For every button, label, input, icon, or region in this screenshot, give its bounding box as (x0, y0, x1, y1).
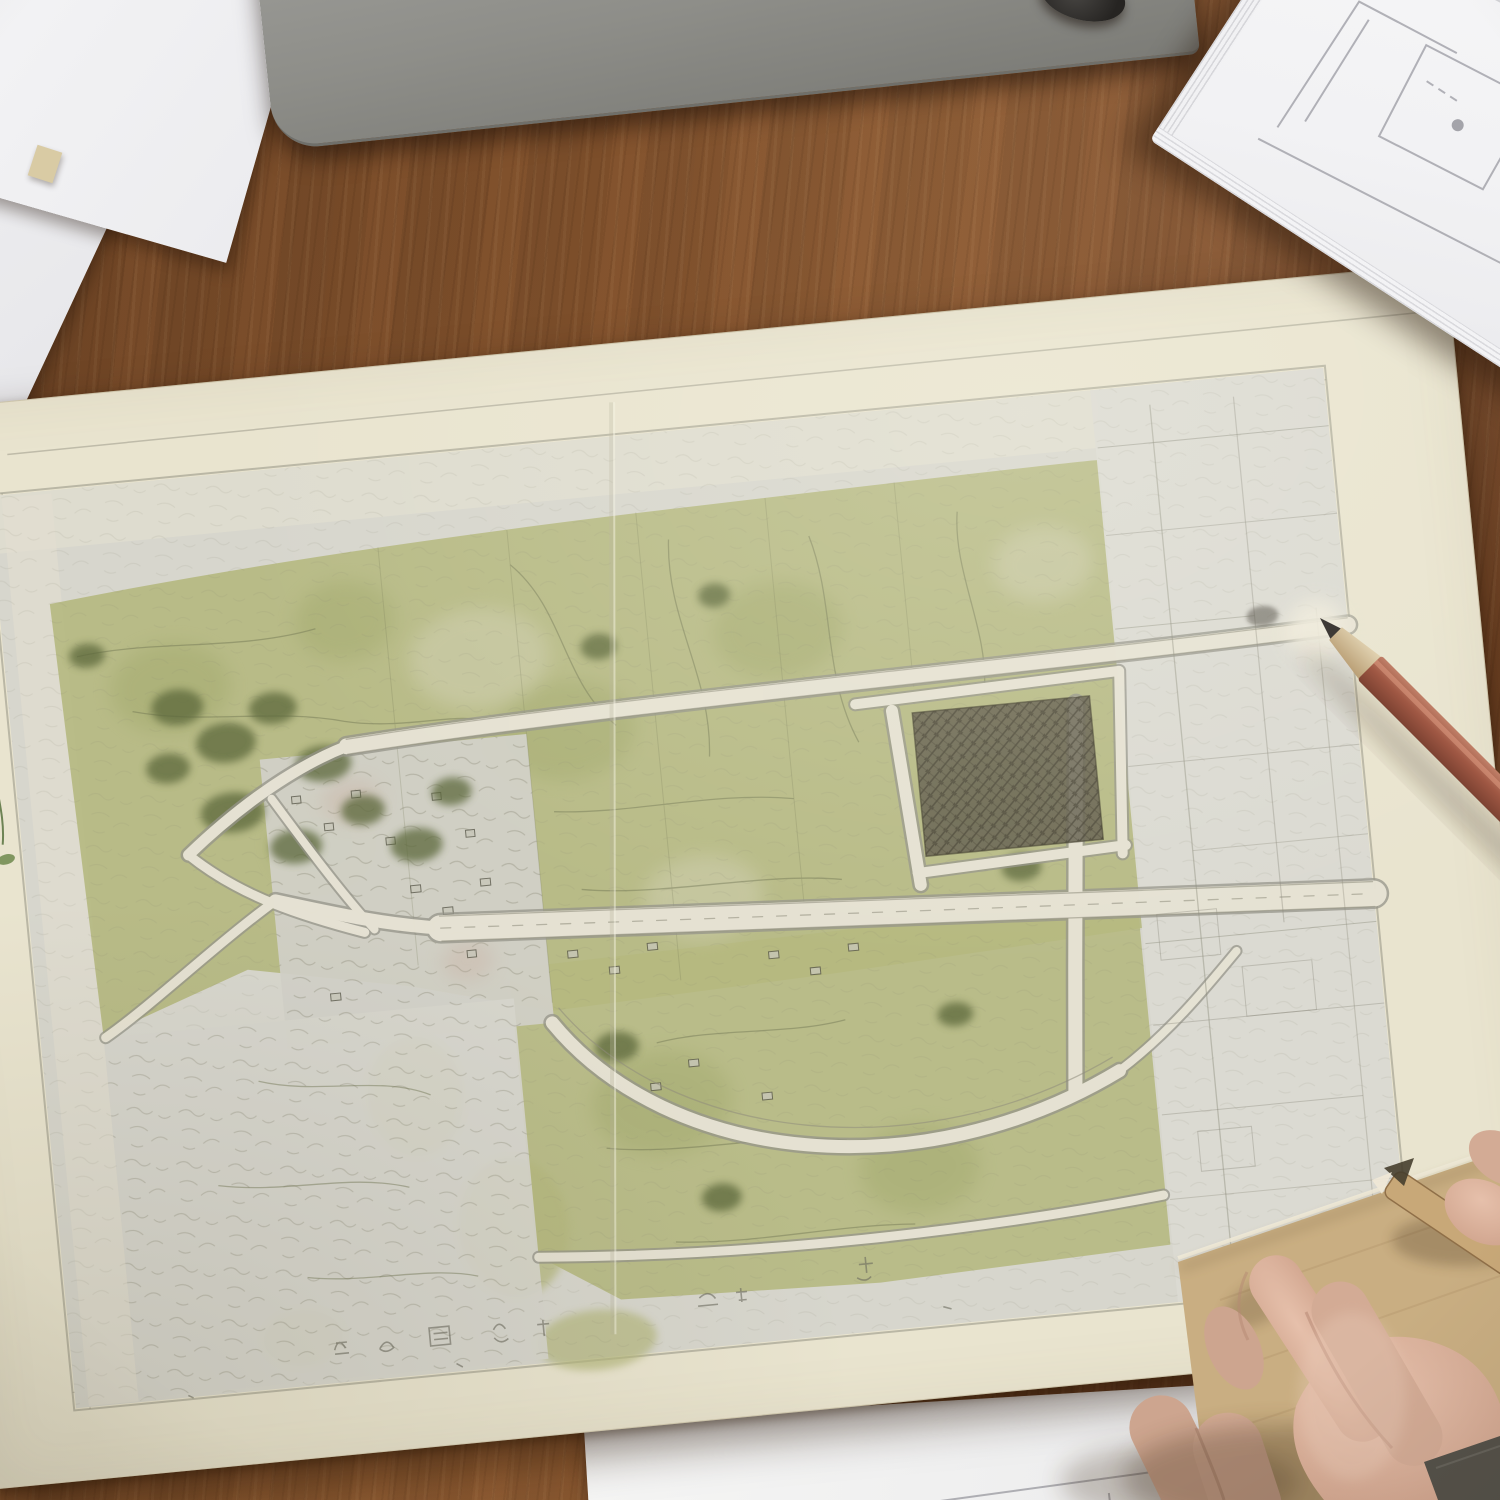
sketch-blob (1449, 117, 1466, 134)
sheet-shading (0, 264, 1500, 1489)
desk-scene: 1931 (0, 0, 1500, 1500)
map-drawing: 1931 (0, 264, 1500, 1489)
map-sheet: 1931 (0, 263, 1500, 1490)
bottom-sketch-lines (668, 1460, 1265, 1500)
